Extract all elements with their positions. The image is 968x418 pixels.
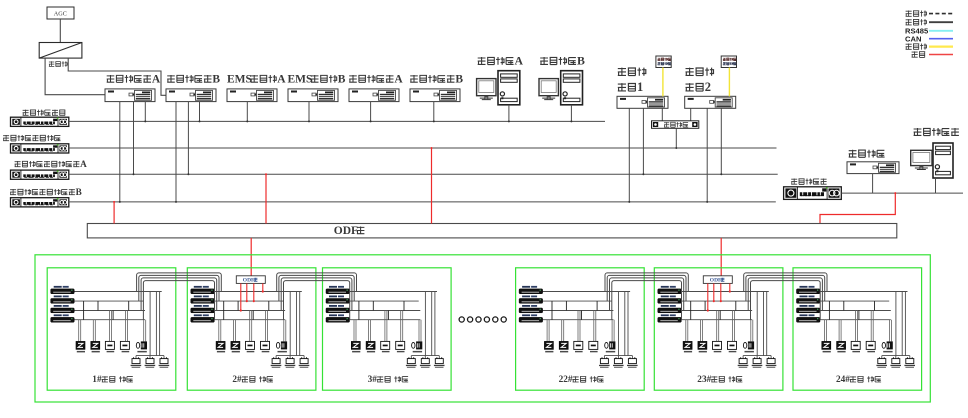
svg-text:AGC: AGC: [54, 10, 67, 17]
svg-text:ODF: ODF: [334, 225, 358, 237]
svg-text:A: A: [80, 159, 87, 169]
svg-text:B: B: [212, 73, 220, 85]
svg-text:A: A: [394, 73, 403, 85]
svg-text:EMS: EMS: [227, 73, 252, 85]
svg-text:22#: 22#: [559, 375, 573, 385]
svg-text:A: A: [152, 73, 161, 85]
svg-text:A: A: [277, 73, 286, 85]
svg-text:ODF: ODF: [710, 277, 722, 283]
svg-text:B: B: [455, 73, 463, 85]
svg-text:1#: 1#: [92, 375, 102, 385]
svg-text:23#: 23#: [697, 375, 711, 385]
svg-text:CAN: CAN: [905, 34, 921, 43]
svg-text:EMS: EMS: [288, 73, 313, 85]
svg-text:3#: 3#: [368, 375, 378, 385]
svg-text:B: B: [76, 187, 82, 197]
svg-text:ODF: ODF: [243, 277, 255, 283]
svg-text:1: 1: [637, 80, 643, 94]
svg-text:B: B: [338, 73, 346, 85]
svg-text:B: B: [577, 54, 585, 68]
svg-text:2: 2: [705, 80, 711, 94]
svg-text:A: A: [515, 54, 524, 68]
svg-text:24#: 24#: [836, 375, 850, 385]
svg-text:2#: 2#: [232, 375, 242, 385]
